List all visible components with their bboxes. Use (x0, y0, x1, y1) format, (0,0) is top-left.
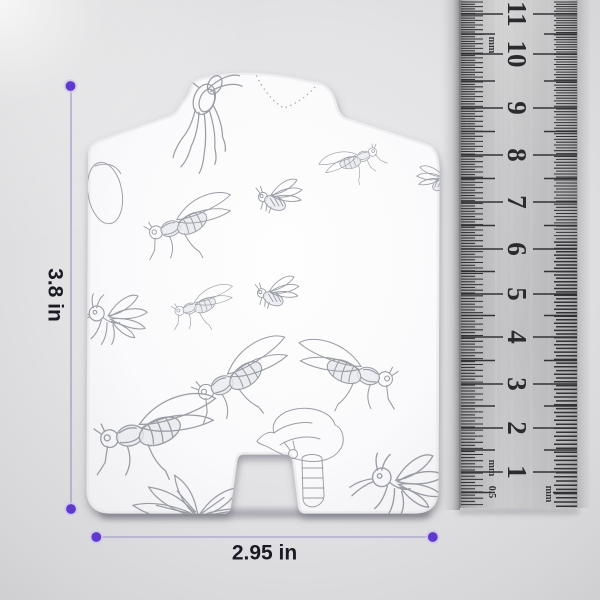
svg-text:7: 7 (502, 195, 532, 209)
svg-text:4: 4 (502, 330, 532, 344)
svg-text:9: 9 (502, 101, 532, 115)
svg-text:0.5: 0.5 (486, 486, 497, 499)
svg-text:2.95 in: 2.95 in (232, 542, 297, 565)
svg-text:mm: mm (486, 37, 497, 54)
svg-text:3: 3 (502, 377, 532, 391)
svg-text:5: 5 (502, 287, 532, 301)
svg-text:6: 6 (502, 242, 532, 256)
svg-text:11: 11 (502, 1, 532, 27)
svg-text:3.8 in: 3.8 in (44, 268, 67, 322)
svg-text:8: 8 (502, 148, 532, 162)
svg-text:1: 1 (502, 465, 532, 479)
svg-text:2: 2 (502, 421, 532, 435)
svg-text:mm: mm (543, 486, 554, 503)
svg-text:10: 10 (502, 41, 532, 68)
svg-text:mm: mm (486, 460, 497, 477)
